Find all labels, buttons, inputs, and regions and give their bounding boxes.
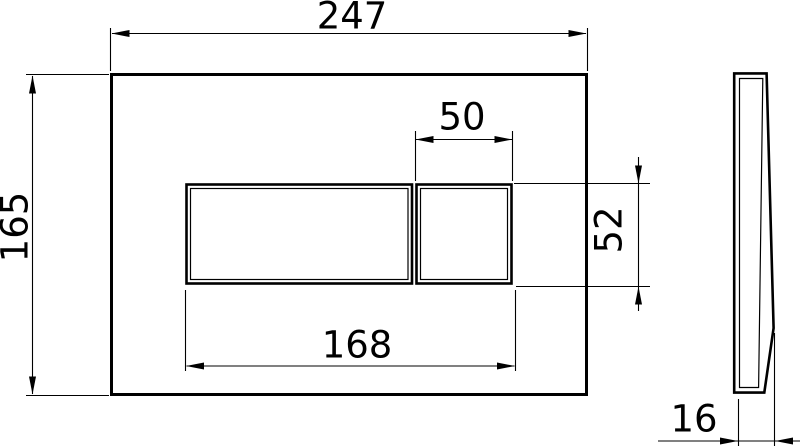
- technical-drawing: 247 165 50 52 168: [0, 0, 800, 448]
- dim-arrow-top: [635, 166, 642, 184]
- dim-arrow-left: [416, 136, 434, 143]
- large-button-outline: [187, 185, 413, 284]
- dimension-label-panel-height: 165: [0, 192, 37, 263]
- large-button-inner-line: [191, 189, 409, 280]
- dim-arrow-left: [720, 438, 738, 445]
- dimension-panel-width: 247: [111, 0, 588, 71]
- dimension-label-button-height: 52: [588, 206, 631, 253]
- dimension-small-button-width: 50: [416, 96, 513, 182]
- dim-arrow-bottom: [635, 287, 642, 305]
- dim-arrow-left: [112, 30, 130, 37]
- side-view: [734, 73, 773, 392]
- dimension-panel-height: 165: [0, 75, 109, 396]
- dimension-label-small-button-width: 50: [438, 96, 485, 139]
- dimension-label-panel-width: 247: [317, 0, 388, 38]
- dimension-label-plate-thickness: 16: [670, 398, 717, 441]
- drawing-canvas: 247 165 50 52 168: [0, 0, 800, 448]
- side-profile-outline: [734, 73, 773, 392]
- dimension-button-group-width: 168: [186, 290, 516, 371]
- dim-arrow-right: [497, 363, 515, 370]
- small-button-outline: [417, 185, 512, 284]
- dimension-plate-thickness: 16: [658, 333, 800, 446]
- dim-arrow-left: [186, 363, 204, 370]
- dimension-label-button-group-width: 168: [322, 324, 393, 367]
- dim-arrow-right: [569, 30, 587, 37]
- small-button-inner-line: [421, 189, 508, 280]
- side-profile-inner-line: [740, 79, 763, 388]
- dim-arrow-right: [775, 438, 793, 445]
- dim-arrow-right: [495, 136, 513, 143]
- dimension-button-height: 52: [514, 157, 650, 311]
- dim-arrow-bottom: [29, 377, 36, 395]
- dim-arrow-top: [29, 76, 36, 94]
